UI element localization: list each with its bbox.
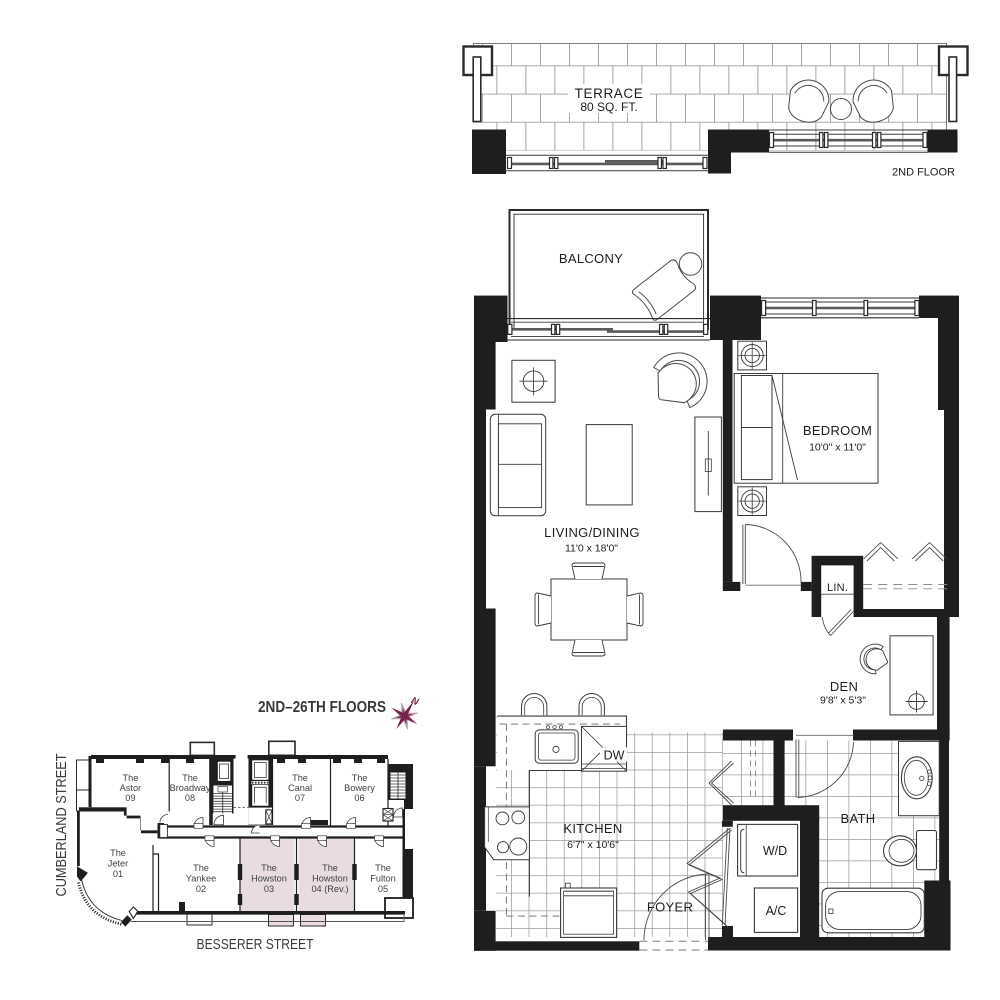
svg-text:The: The xyxy=(322,863,338,873)
svg-text:BESSERER STREET: BESSERER STREET xyxy=(197,936,314,953)
svg-text:TERRACE: TERRACE xyxy=(575,86,644,101)
svg-text:DEN: DEN xyxy=(830,679,858,694)
svg-text:A/C: A/C xyxy=(766,904,787,918)
svg-text:The: The xyxy=(110,848,126,858)
svg-text:6'7" x 10'6": 6'7" x 10'6" xyxy=(567,839,619,851)
svg-text:Yankee: Yankee xyxy=(186,874,216,884)
svg-text:The: The xyxy=(122,773,138,783)
svg-text:2ND FLOOR: 2ND FLOOR xyxy=(892,167,955,179)
svg-text:Fulton: Fulton xyxy=(370,874,396,884)
svg-text:Howston: Howston xyxy=(251,874,287,884)
svg-text:01: 01 xyxy=(113,869,123,879)
svg-text:Canal: Canal xyxy=(288,783,312,793)
svg-text:80 SQ. FT.: 80 SQ. FT. xyxy=(580,100,637,114)
svg-text:DW: DW xyxy=(604,749,625,763)
svg-text:Bowery: Bowery xyxy=(344,783,375,793)
svg-text:BEDROOM: BEDROOM xyxy=(803,423,872,438)
svg-text:02: 02 xyxy=(196,884,206,894)
svg-text:The: The xyxy=(292,773,308,783)
svg-text:Astor: Astor xyxy=(120,783,141,793)
svg-text:FOYER: FOYER xyxy=(647,900,693,915)
svg-text:The: The xyxy=(352,773,368,783)
svg-text:The: The xyxy=(193,863,209,873)
svg-text:Howston: Howston xyxy=(312,874,348,884)
svg-text:The: The xyxy=(375,863,391,873)
svg-text:07: 07 xyxy=(295,793,305,803)
svg-text:09: 09 xyxy=(125,793,135,803)
svg-text:9'8" x 5'3": 9'8" x 5'3" xyxy=(820,695,866,707)
svg-text:The: The xyxy=(261,863,277,873)
svg-text:10'0" x 11'0": 10'0" x 11'0" xyxy=(809,442,866,454)
svg-text:BALCONY: BALCONY xyxy=(559,251,623,266)
svg-text:03: 03 xyxy=(264,884,274,894)
svg-text:KITCHEN: KITCHEN xyxy=(563,821,622,836)
svg-text:The: The xyxy=(182,773,198,783)
svg-text:Jeter: Jeter xyxy=(108,859,128,869)
svg-text:Broadway: Broadway xyxy=(170,783,211,793)
svg-text:CUMBERLAND STREET: CUMBERLAND STREET xyxy=(54,753,70,896)
svg-text:LIVING/DINING: LIVING/DINING xyxy=(544,525,640,540)
svg-text:08: 08 xyxy=(185,793,195,803)
svg-text:W/D: W/D xyxy=(763,844,787,858)
svg-text:BATH: BATH xyxy=(841,811,876,826)
svg-text:11'0 x 18'0": 11'0 x 18'0" xyxy=(565,543,618,555)
svg-text:05: 05 xyxy=(378,884,388,894)
svg-text:LIN.: LIN. xyxy=(827,582,848,594)
svg-text:06: 06 xyxy=(354,793,364,803)
svg-text:2ND–26TH FLOORS: 2ND–26TH FLOORS xyxy=(258,699,386,716)
svg-text:04 (Rev.): 04 (Rev.) xyxy=(311,884,348,894)
